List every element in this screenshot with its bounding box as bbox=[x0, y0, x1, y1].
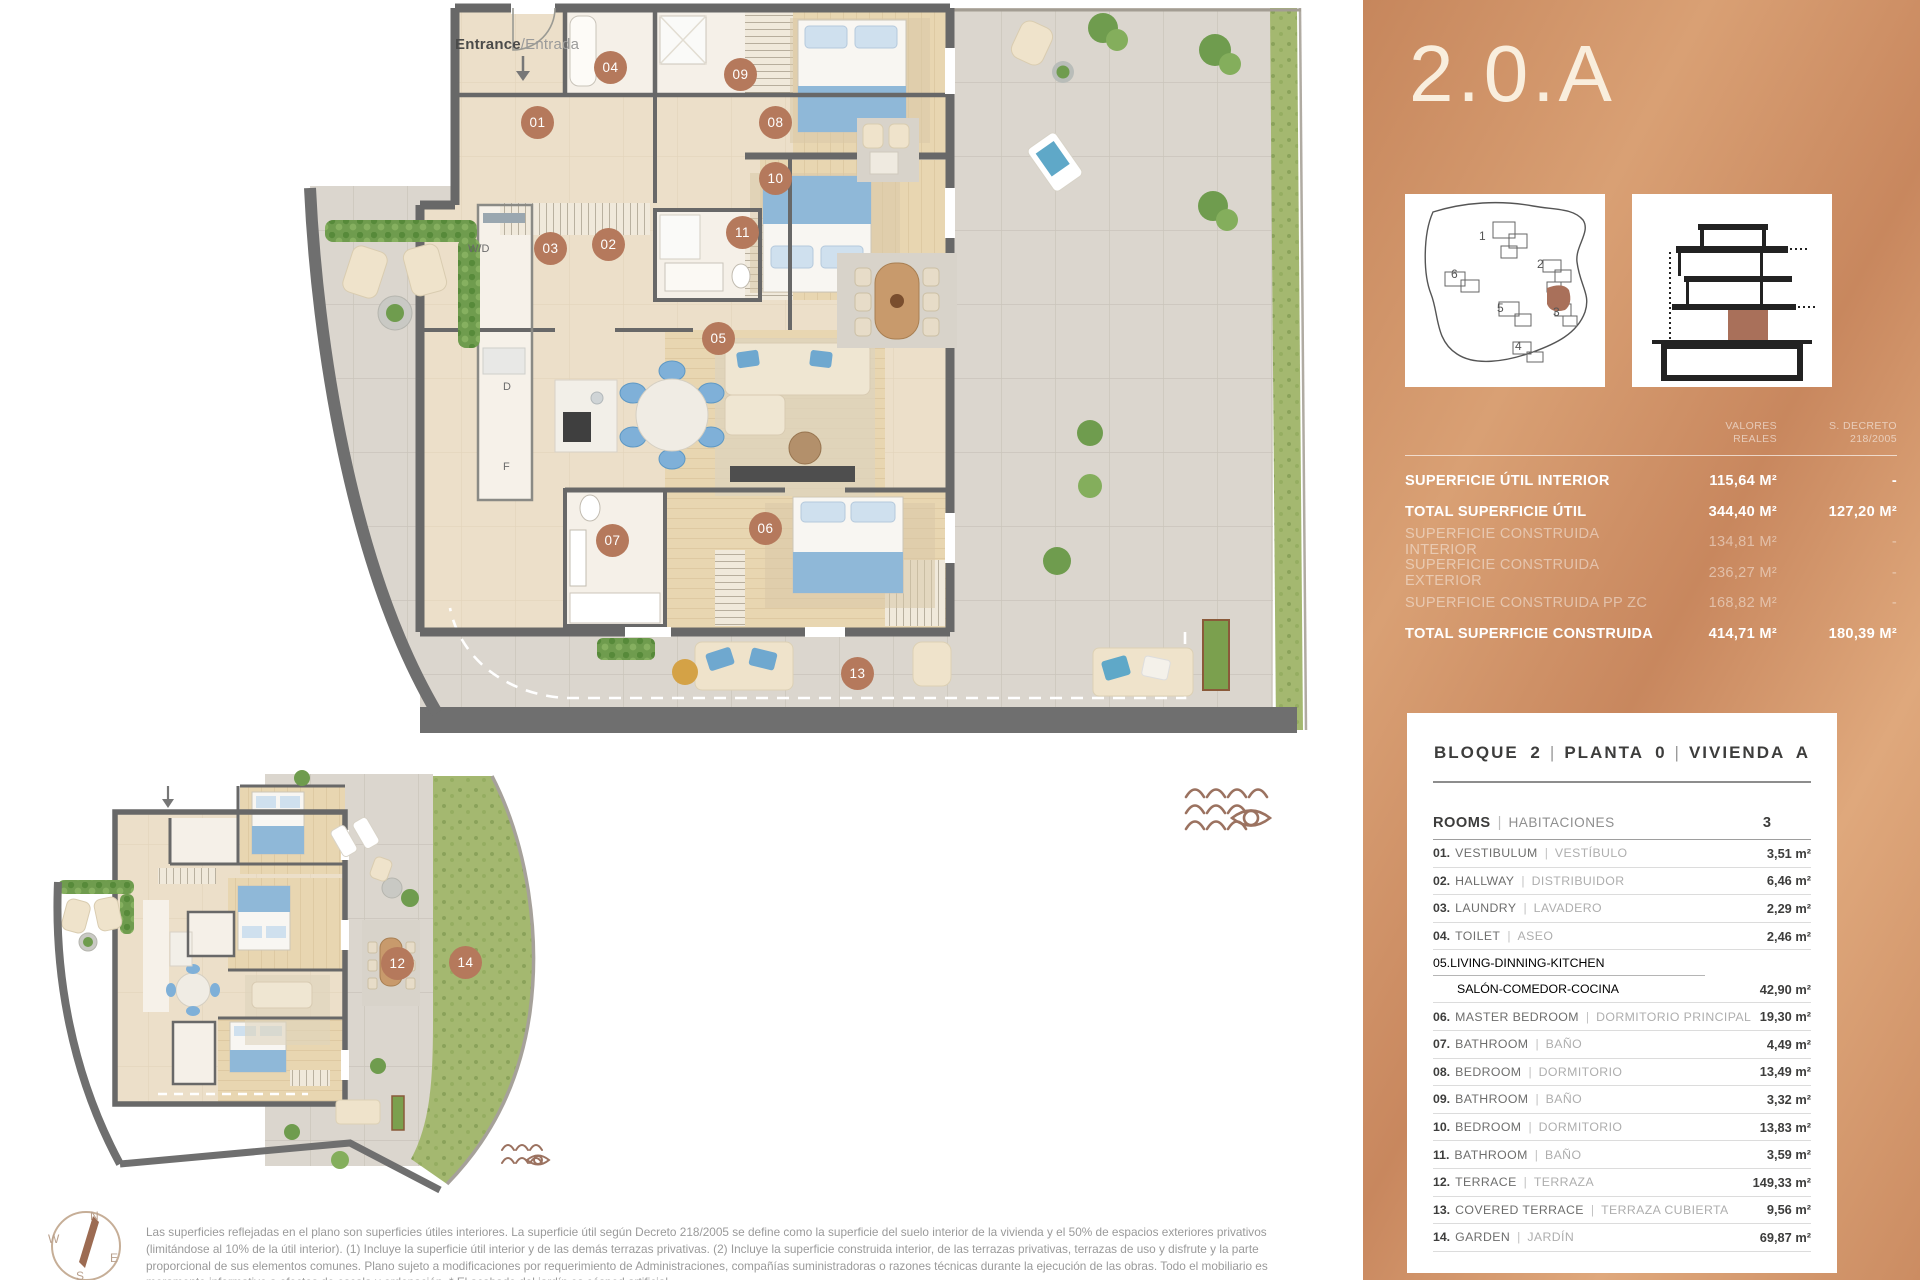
room-row: 10. BEDROOM | DORMITORIO 13,83 m² bbox=[1433, 1114, 1811, 1142]
outdoor-dining-set bbox=[837, 253, 957, 348]
room-name-es: LAVADERO bbox=[1534, 901, 1602, 915]
rooms-count-row: ROOMS | HABITACIONES 3 bbox=[1433, 815, 1811, 839]
room-number: 10. bbox=[1433, 1120, 1450, 1134]
room-number: 09. bbox=[1433, 1092, 1450, 1106]
plan-area: W/D D F N W E S bbox=[0, 0, 1363, 1280]
surface-value-decreto: - bbox=[1777, 565, 1897, 581]
room-name-en: BATHROOM bbox=[1455, 1092, 1528, 1106]
disclaimer-line: proporcional de sus elementos comunes. P… bbox=[146, 1258, 1361, 1275]
room-name-en: COVERED TERRACE bbox=[1455, 1203, 1584, 1217]
mini-sofa bbox=[252, 982, 312, 1008]
tv-console bbox=[730, 466, 855, 482]
compass-n: N bbox=[90, 1209, 99, 1223]
room-number: 04. bbox=[1433, 929, 1450, 943]
room-number: 11. bbox=[1433, 1148, 1449, 1162]
room-badge-03: 03 bbox=[534, 232, 567, 265]
surface-value-decreto: - bbox=[1777, 595, 1897, 611]
room-name-es: VESTÍBULO bbox=[1555, 846, 1628, 860]
surface-value-real: 344,40 m² bbox=[1655, 504, 1777, 520]
room-name-es: TERRAZA bbox=[1534, 1175, 1594, 1189]
dishwasher-label: D bbox=[503, 381, 511, 393]
room-area: 9,56 m² bbox=[1767, 1202, 1811, 1217]
room-row: 14. GARDEN | JARDÍN 69,87 m² bbox=[1433, 1224, 1811, 1252]
room-row: 06. MASTER BEDROOM | DORMITORIO PRINCIPA… bbox=[1433, 1003, 1811, 1031]
room-name-es: JARDÍN bbox=[1527, 1230, 1574, 1244]
room-name-es: ASEO bbox=[1518, 929, 1554, 943]
room-badge-10: 10 bbox=[759, 162, 792, 195]
surface-row: SUPERFICIE ÚTIL INTERIOR 115,64 m² - bbox=[1405, 466, 1897, 497]
room-number: 03. bbox=[1433, 901, 1450, 915]
room-name-es: DORMITORIO bbox=[1539, 1120, 1623, 1134]
room-area: 149,33 m² bbox=[1753, 1175, 1811, 1190]
entrance-label: Entrance/Entrada bbox=[455, 36, 579, 53]
boundary-wall bbox=[420, 707, 1297, 733]
room-row: 01. VESTIBULUM | VESTÍBULO 3,51 m² bbox=[1433, 840, 1811, 868]
room-number: 07. bbox=[1433, 1037, 1450, 1051]
disclaimer-line: meramente informativo a efectos de escal… bbox=[146, 1274, 1361, 1280]
surface-value-real: 168,82 m² bbox=[1655, 595, 1777, 611]
room-number: 14. bbox=[1433, 1230, 1450, 1244]
surface-label: TOTAL SUPERFICIE CONSTRUIDA bbox=[1405, 626, 1655, 642]
room-badge-04: 04 bbox=[594, 51, 627, 84]
surface-value-decreto: - bbox=[1777, 534, 1897, 550]
room-badge-13: 13 bbox=[841, 657, 874, 690]
surface-table: VALORESREALES S. DECRETO218/2005 SUPERFI… bbox=[1405, 420, 1897, 649]
room-number: 06. bbox=[1433, 1010, 1450, 1024]
room-name-en: BEDROOM bbox=[1455, 1065, 1521, 1079]
room-badge-07: 07 bbox=[596, 524, 629, 557]
col-decreto: S. DECRETO218/2005 bbox=[1777, 420, 1897, 446]
fridge-label: F bbox=[503, 461, 510, 473]
room-area: 2,46 m² bbox=[1767, 929, 1811, 944]
room-area: 42,90 m² bbox=[1760, 982, 1811, 997]
room-row: 12. TERRACE | TERRAZA 149,33 m² bbox=[1433, 1169, 1811, 1197]
room-number: 12. bbox=[1433, 1175, 1450, 1189]
grass-strip bbox=[1270, 8, 1303, 730]
room-name-en: LIVING-DINNING-KITCHEN bbox=[1450, 956, 1604, 970]
room-name-es: BAÑO bbox=[1546, 1092, 1582, 1106]
room-area: 19,30 m² bbox=[1760, 1009, 1811, 1024]
washer-dryer bbox=[483, 213, 525, 223]
bed-master-bedroom bbox=[765, 497, 935, 608]
room-badge-05: 05 bbox=[702, 322, 735, 355]
room-area: 13,83 m² bbox=[1760, 1120, 1811, 1135]
room-row: 03. LAUNDRY | LAVADERO 2,29 m² bbox=[1433, 895, 1811, 923]
surface-value-decreto: 127,20 m² bbox=[1777, 504, 1897, 520]
room-row: 08. BEDROOM | DORMITORIO 13,49 m² bbox=[1433, 1059, 1811, 1087]
svg-text:5: 5 bbox=[1497, 301, 1504, 315]
highlighted-floor bbox=[1728, 310, 1768, 340]
compass-w: W bbox=[48, 1232, 60, 1246]
surface-label: SUPERFICIE ÚTIL INTERIOR bbox=[1405, 473, 1655, 489]
room-name-es: BAÑO bbox=[1546, 1037, 1582, 1051]
room-name-es: TERRAZA CUBIERTA bbox=[1601, 1203, 1729, 1217]
col-valores-reales: VALORESREALES bbox=[1655, 420, 1777, 446]
compass: N W E S bbox=[48, 1209, 120, 1280]
room-name-es: DORMITORIO bbox=[1539, 1065, 1623, 1079]
room-area: 4,49 m² bbox=[1767, 1037, 1811, 1052]
room-name-en: GARDEN bbox=[1455, 1230, 1510, 1244]
hedge bbox=[597, 638, 655, 660]
room-area: 13,49 m² bbox=[1760, 1064, 1811, 1079]
room-row: 09. BATHROOM | BAÑO 3,32 m² bbox=[1433, 1086, 1811, 1114]
room-name-es: DISTRIBUIDOR bbox=[1532, 874, 1625, 888]
sidebar: 2.0.A 162 534 bbox=[1363, 0, 1920, 1280]
room-row: 13. COVERED TERRACE | TERRAZA CUBIERTA 9… bbox=[1433, 1197, 1811, 1225]
flower-bed bbox=[1203, 620, 1229, 690]
room-badge-06: 06 bbox=[749, 512, 782, 545]
svg-text:6: 6 bbox=[1451, 267, 1458, 281]
surface-value-real: 414,71 m² bbox=[1655, 626, 1777, 642]
sea-view-icon bbox=[1186, 790, 1270, 830]
room-row: 07. BATHROOM | BAÑO 4,49 m² bbox=[1433, 1031, 1811, 1059]
surface-row: SUPERFICIE CONSTRUIDA EXTERIOR 236,27 m²… bbox=[1405, 558, 1897, 589]
surface-row: TOTAL SUPERFICIE CONSTRUIDA 414,71 m² 18… bbox=[1405, 619, 1897, 650]
room-name-en: BEDROOM bbox=[1455, 1120, 1521, 1134]
room-badge-12: 12 bbox=[381, 947, 414, 980]
room-row: 05.LIVING-DINNING-KITCHEN SALÓN-COMEDOR-… bbox=[1433, 950, 1811, 1003]
mini-entrance-arrow-icon bbox=[162, 786, 174, 808]
surface-value-decreto: 180,39 m² bbox=[1777, 626, 1897, 642]
room-name-en: LAUNDRY bbox=[1455, 901, 1516, 915]
surface-row: TOTAL SUPERFICIE ÚTIL 344,40 m² 127,20 m… bbox=[1405, 497, 1897, 528]
room-area: 3,51 m² bbox=[1767, 846, 1811, 861]
coffee-table bbox=[789, 432, 821, 464]
room-name-en: TOILET bbox=[1455, 929, 1500, 943]
entrance-label-es: Entrada bbox=[525, 36, 579, 53]
svg-text:1: 1 bbox=[1479, 229, 1486, 243]
svg-text:4: 4 bbox=[1515, 339, 1522, 353]
room-area: 2,29 m² bbox=[1767, 901, 1811, 916]
site-plan-thumbnail: 162 534 bbox=[1405, 194, 1605, 387]
room-name-es: SALÓN-COMEDOR-COCINA bbox=[1457, 982, 1619, 996]
room-name-en: BATHROOM bbox=[1454, 1148, 1527, 1162]
room-badge-01: 01 bbox=[521, 106, 554, 139]
outdoor-armchair bbox=[913, 642, 951, 686]
small-floorplan bbox=[57, 770, 533, 1190]
sea-view-icon-small bbox=[502, 1145, 549, 1165]
room-name-en: VESTIBULUM bbox=[1455, 846, 1538, 860]
surface-label: TOTAL SUPERFICIE ÚTIL bbox=[1405, 504, 1655, 520]
room-area: 6,46 m² bbox=[1767, 873, 1811, 888]
room-number: 05. bbox=[1433, 956, 1450, 970]
surface-row: SUPERFICIE CONSTRUIDA INTERIOR 134,81 m²… bbox=[1405, 527, 1897, 558]
card-header: BLOQUE 2|PLANTA 0|VIVIENDA A bbox=[1433, 743, 1811, 763]
room-number: 13. bbox=[1433, 1203, 1450, 1217]
room-name-en: HALLWAY bbox=[1455, 874, 1514, 888]
compass-e: E bbox=[110, 1251, 118, 1265]
disclaimer-text: Las superficies reflejadas en el plano s… bbox=[146, 1224, 1361, 1280]
appliance bbox=[483, 348, 525, 374]
surface-row: SUPERFICIE CONSTRUIDA PP ZC 168,82 m² - bbox=[1405, 588, 1897, 619]
bistro-set bbox=[857, 118, 919, 182]
surface-label: SUPERFICIE CONSTRUIDA INTERIOR bbox=[1405, 526, 1655, 558]
room-number: 01. bbox=[1433, 846, 1450, 860]
compass-s: S bbox=[76, 1269, 84, 1280]
daybed bbox=[1093, 648, 1193, 696]
kitchen-island bbox=[555, 380, 617, 452]
room-area: 3,59 m² bbox=[1767, 1147, 1811, 1162]
surface-value-real: 134,81 m² bbox=[1655, 534, 1777, 550]
surface-label: SUPERFICIE CONSTRUIDA PP ZC bbox=[1405, 595, 1655, 611]
room-row: 11. BATHROOM | BAÑO 3,59 m² bbox=[1433, 1141, 1811, 1169]
room-number: 02. bbox=[1433, 874, 1450, 888]
svg-text:2: 2 bbox=[1537, 257, 1544, 271]
shower-09 bbox=[660, 16, 706, 64]
washer-dryer-label: W/D bbox=[468, 243, 489, 255]
unit-card: BLOQUE 2|PLANTA 0|VIVIENDA A ROOMS | HAB… bbox=[1407, 713, 1837, 1273]
room-badge-02: 02 bbox=[592, 228, 625, 261]
surface-label: SUPERFICIE CONSTRUIDA EXTERIOR bbox=[1405, 557, 1655, 589]
entrance-door-gap bbox=[511, 3, 555, 14]
room-number: 08. bbox=[1433, 1065, 1450, 1079]
disclaimer-line: (limitándose al 10% de la útil interior)… bbox=[146, 1241, 1361, 1258]
room-name-en: BATHROOM bbox=[1455, 1037, 1528, 1051]
disclaimer-line: Las superficies reflejadas en el plano s… bbox=[146, 1224, 1361, 1241]
room-badge-14: 14 bbox=[449, 946, 482, 979]
surface-value-decreto: - bbox=[1777, 473, 1897, 489]
main-floorplan bbox=[310, 3, 1306, 733]
room-area: 69,87 m² bbox=[1760, 1230, 1811, 1245]
room-name-en: MASTER BEDROOM bbox=[1455, 1010, 1579, 1024]
room-name-es: BAÑO bbox=[1545, 1148, 1581, 1162]
room-badge-08: 08 bbox=[759, 106, 792, 139]
room-name-es: DORMITORIO PRINCIPAL bbox=[1596, 1010, 1751, 1024]
svg-text:3: 3 bbox=[1553, 305, 1560, 319]
section-thumbnail bbox=[1632, 194, 1832, 387]
floorplan-sheet: W/D D F N W E S Entrance/Entrada L bbox=[0, 0, 1920, 1280]
entrance-label-en: Entrance bbox=[455, 36, 521, 53]
mini-dining-table bbox=[176, 973, 210, 1007]
room-name-en: TERRACE bbox=[1455, 1175, 1517, 1189]
room-badge-11: 11 bbox=[726, 216, 759, 249]
room-row: 02. HALLWAY | DISTRIBUIDOR 6,46 m² bbox=[1433, 868, 1811, 896]
hedge bbox=[325, 220, 477, 242]
room-badge-09: 09 bbox=[724, 58, 757, 91]
unit-title: 2.0.A bbox=[1409, 28, 1616, 120]
room-area: 3,32 m² bbox=[1767, 1092, 1811, 1107]
surface-value-real: 115,64 m² bbox=[1655, 473, 1777, 489]
surface-value-real: 236,27 m² bbox=[1655, 565, 1777, 581]
rooms-count: 3 bbox=[1763, 815, 1771, 831]
wardrobe bbox=[715, 550, 745, 626]
room-row: 04. TOILET | ASEO 2,46 m² bbox=[1433, 923, 1811, 951]
